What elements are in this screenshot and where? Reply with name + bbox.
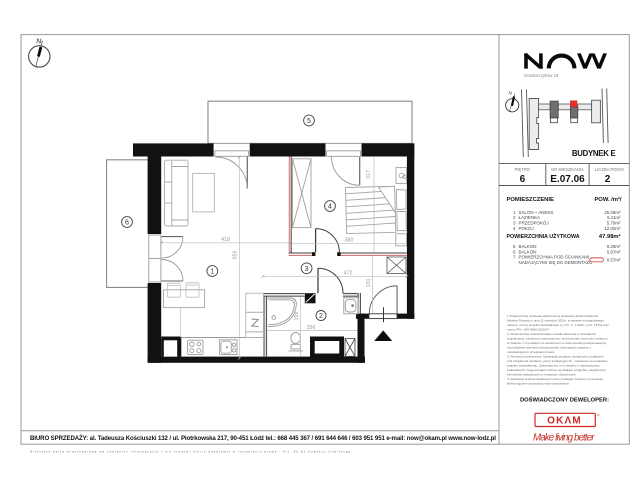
svg-text:12.00m²: 12.00m² [604, 226, 621, 231]
svg-text:POWIERZCHNIA POD ŚCIANKAMI: POWIERZCHNIA POD ŚCIANKAMI [519, 253, 590, 260]
svg-text:5.11m²: 5.11m² [607, 215, 621, 220]
svg-text:normy PN—ISO 9836:2020:07.: normy PN—ISO 9836:2020:07. [507, 328, 550, 332]
svg-text:PIĘTRO: PIĘTRO [515, 167, 531, 172]
svg-text:®: ® [597, 414, 600, 418]
svg-text:obowiązującymi przepisami praw: obowiązującymi przepisami prawa. [507, 350, 555, 354]
svg-text:191: 191 [366, 278, 372, 287]
svg-text:SALON + ANEKS: SALON + ANEKS [519, 210, 554, 215]
svg-text:BALKON: BALKON [519, 249, 537, 254]
svg-text:Niniejsza karta mieszkaniowa m: Niniejsza karta mieszkaniowa ma charakte… [30, 449, 352, 453]
svg-text:BUDYNEK E: BUDYNEK E [572, 149, 616, 158]
svg-text:6: 6 [520, 174, 526, 185]
svg-text:POWIERZCHNIA UŻYTKOWA: POWIERZCHNIA UŻYTKOWA [507, 233, 580, 240]
svg-text:budowlanych mogą wystąpić różn: budowlanych mogą wystąpić różnice wynika… [507, 368, 606, 372]
svg-text:3. Wymiary pomieszczeń, lokali: 3. Wymiary pomieszczeń, lokalizacja przy… [507, 355, 604, 359]
svg-text:9.29m²: 9.29m² [607, 244, 621, 249]
svg-text:LICZBA POKOI: LICZBA POKOI [595, 167, 624, 172]
svg-text:5: 5 [307, 118, 311, 125]
svg-text:w związku z czynnikami za okre: w związku z czynnikami za określeniem w … [507, 341, 607, 345]
svg-text:418: 418 [221, 237, 230, 243]
svg-text:POMIESZCZENIE: POMIESZCZENIE [507, 197, 554, 203]
svg-text:317: 317 [366, 170, 372, 179]
svg-text:E.07.06: E.07.06 [550, 174, 585, 185]
svg-text:380: 380 [345, 238, 354, 244]
svg-text:Make living better: Make living better [533, 433, 595, 444]
svg-text:4: 4 [328, 204, 332, 211]
svg-text:BALKON: BALKON [519, 244, 537, 249]
svg-text:Ministra Rozwoju z dnia 11 wrz: Ministra Rozwoju z dnia 11 września 2020… [507, 319, 604, 323]
svg-text:na podstawie pomiarów geodezyj: na podstawie pomiarów geodezyjnych dokon… [507, 346, 591, 350]
svg-text:2: 2 [319, 313, 323, 320]
svg-text:3: 3 [305, 266, 309, 273]
svg-text:zakresu i formy projektu budow: zakresu i formy projektu budowlanego (t.… [507, 323, 609, 327]
svg-text:6: 6 [125, 220, 129, 227]
svg-text:5.87m²: 5.87m² [607, 249, 621, 254]
svg-text:4. Aranżacja ścianek działowyc: 4. Aranżacja ścianek działowych może pod… [507, 377, 603, 381]
svg-text:elementów wskazanych w niniejs: elementów wskazanych w niniejszym dokume… [507, 373, 577, 377]
svg-text:BIURO SPRZEDAŻY: al. Tadeusza: BIURO SPRZEDAŻY: al. Tadeusza Kościuszki… [30, 435, 496, 442]
svg-text:47.98m²: 47.98m² [599, 233, 621, 240]
svg-text:projektowym, niniejszym zastrz: projektowym, niniejszym zastrzega się, ż… [507, 337, 608, 341]
svg-text:0.57m²: 0.57m² [607, 258, 621, 263]
svg-text:DOŚWIADCZONY DEWELOPER:: DOŚWIADCZONY DEWELOPER: [520, 397, 609, 404]
svg-text:NR MIESZKANIA: NR MIESZKANIA [551, 167, 584, 172]
svg-text:2: 2 [605, 174, 611, 185]
svg-text:1 Powierzchnia użytkowa oblicz: 1 Powierzchnia użytkowa obliczona na pod… [507, 314, 598, 318]
svg-text:199: 199 [294, 312, 300, 321]
svg-text:2. Powierzchnia użytkowa lokal: 2. Powierzchnia użytkowa lokalu została … [507, 332, 597, 336]
svg-text:Dowborczyków 18: Dowborczyków 18 [524, 73, 559, 78]
svg-text:POKÓJ: POKÓJ [519, 225, 534, 231]
svg-text:OKΛM: OKΛM [547, 416, 582, 427]
svg-text:656: 656 [233, 251, 239, 260]
svg-text:1: 1 [210, 269, 214, 276]
svg-text:klienta zgodnie procedurą zmia: klienta zgodnie procedurą zmian lokators… [507, 382, 570, 386]
svg-text:296: 296 [307, 325, 316, 331]
svg-text:pod urządzenia sanitarne, pion: pod urządzenia sanitarne, piony instalac… [507, 359, 608, 363]
svg-text:5.79m²: 5.79m² [607, 221, 621, 226]
svg-text:PRZEDPOKÓJ: PRZEDPOKÓJ [519, 220, 549, 226]
svg-text:projektu budowlanego. Zastrzeg: projektu budowlanego. Zastrzega się, iż … [507, 364, 600, 368]
svg-text:25.08m²: 25.08m² [604, 210, 621, 215]
svg-text:472: 472 [344, 271, 353, 277]
svg-text:NADAJĄCYMI SIĘ DO DEMONTAŻU: NADAJĄCYMI SIĘ DO DEMONTAŻU [519, 259, 593, 265]
svg-text:ŁAZIENKA: ŁAZIENKA [519, 215, 540, 220]
svg-text:POW. /m²/: POW. /m²/ [594, 196, 621, 203]
